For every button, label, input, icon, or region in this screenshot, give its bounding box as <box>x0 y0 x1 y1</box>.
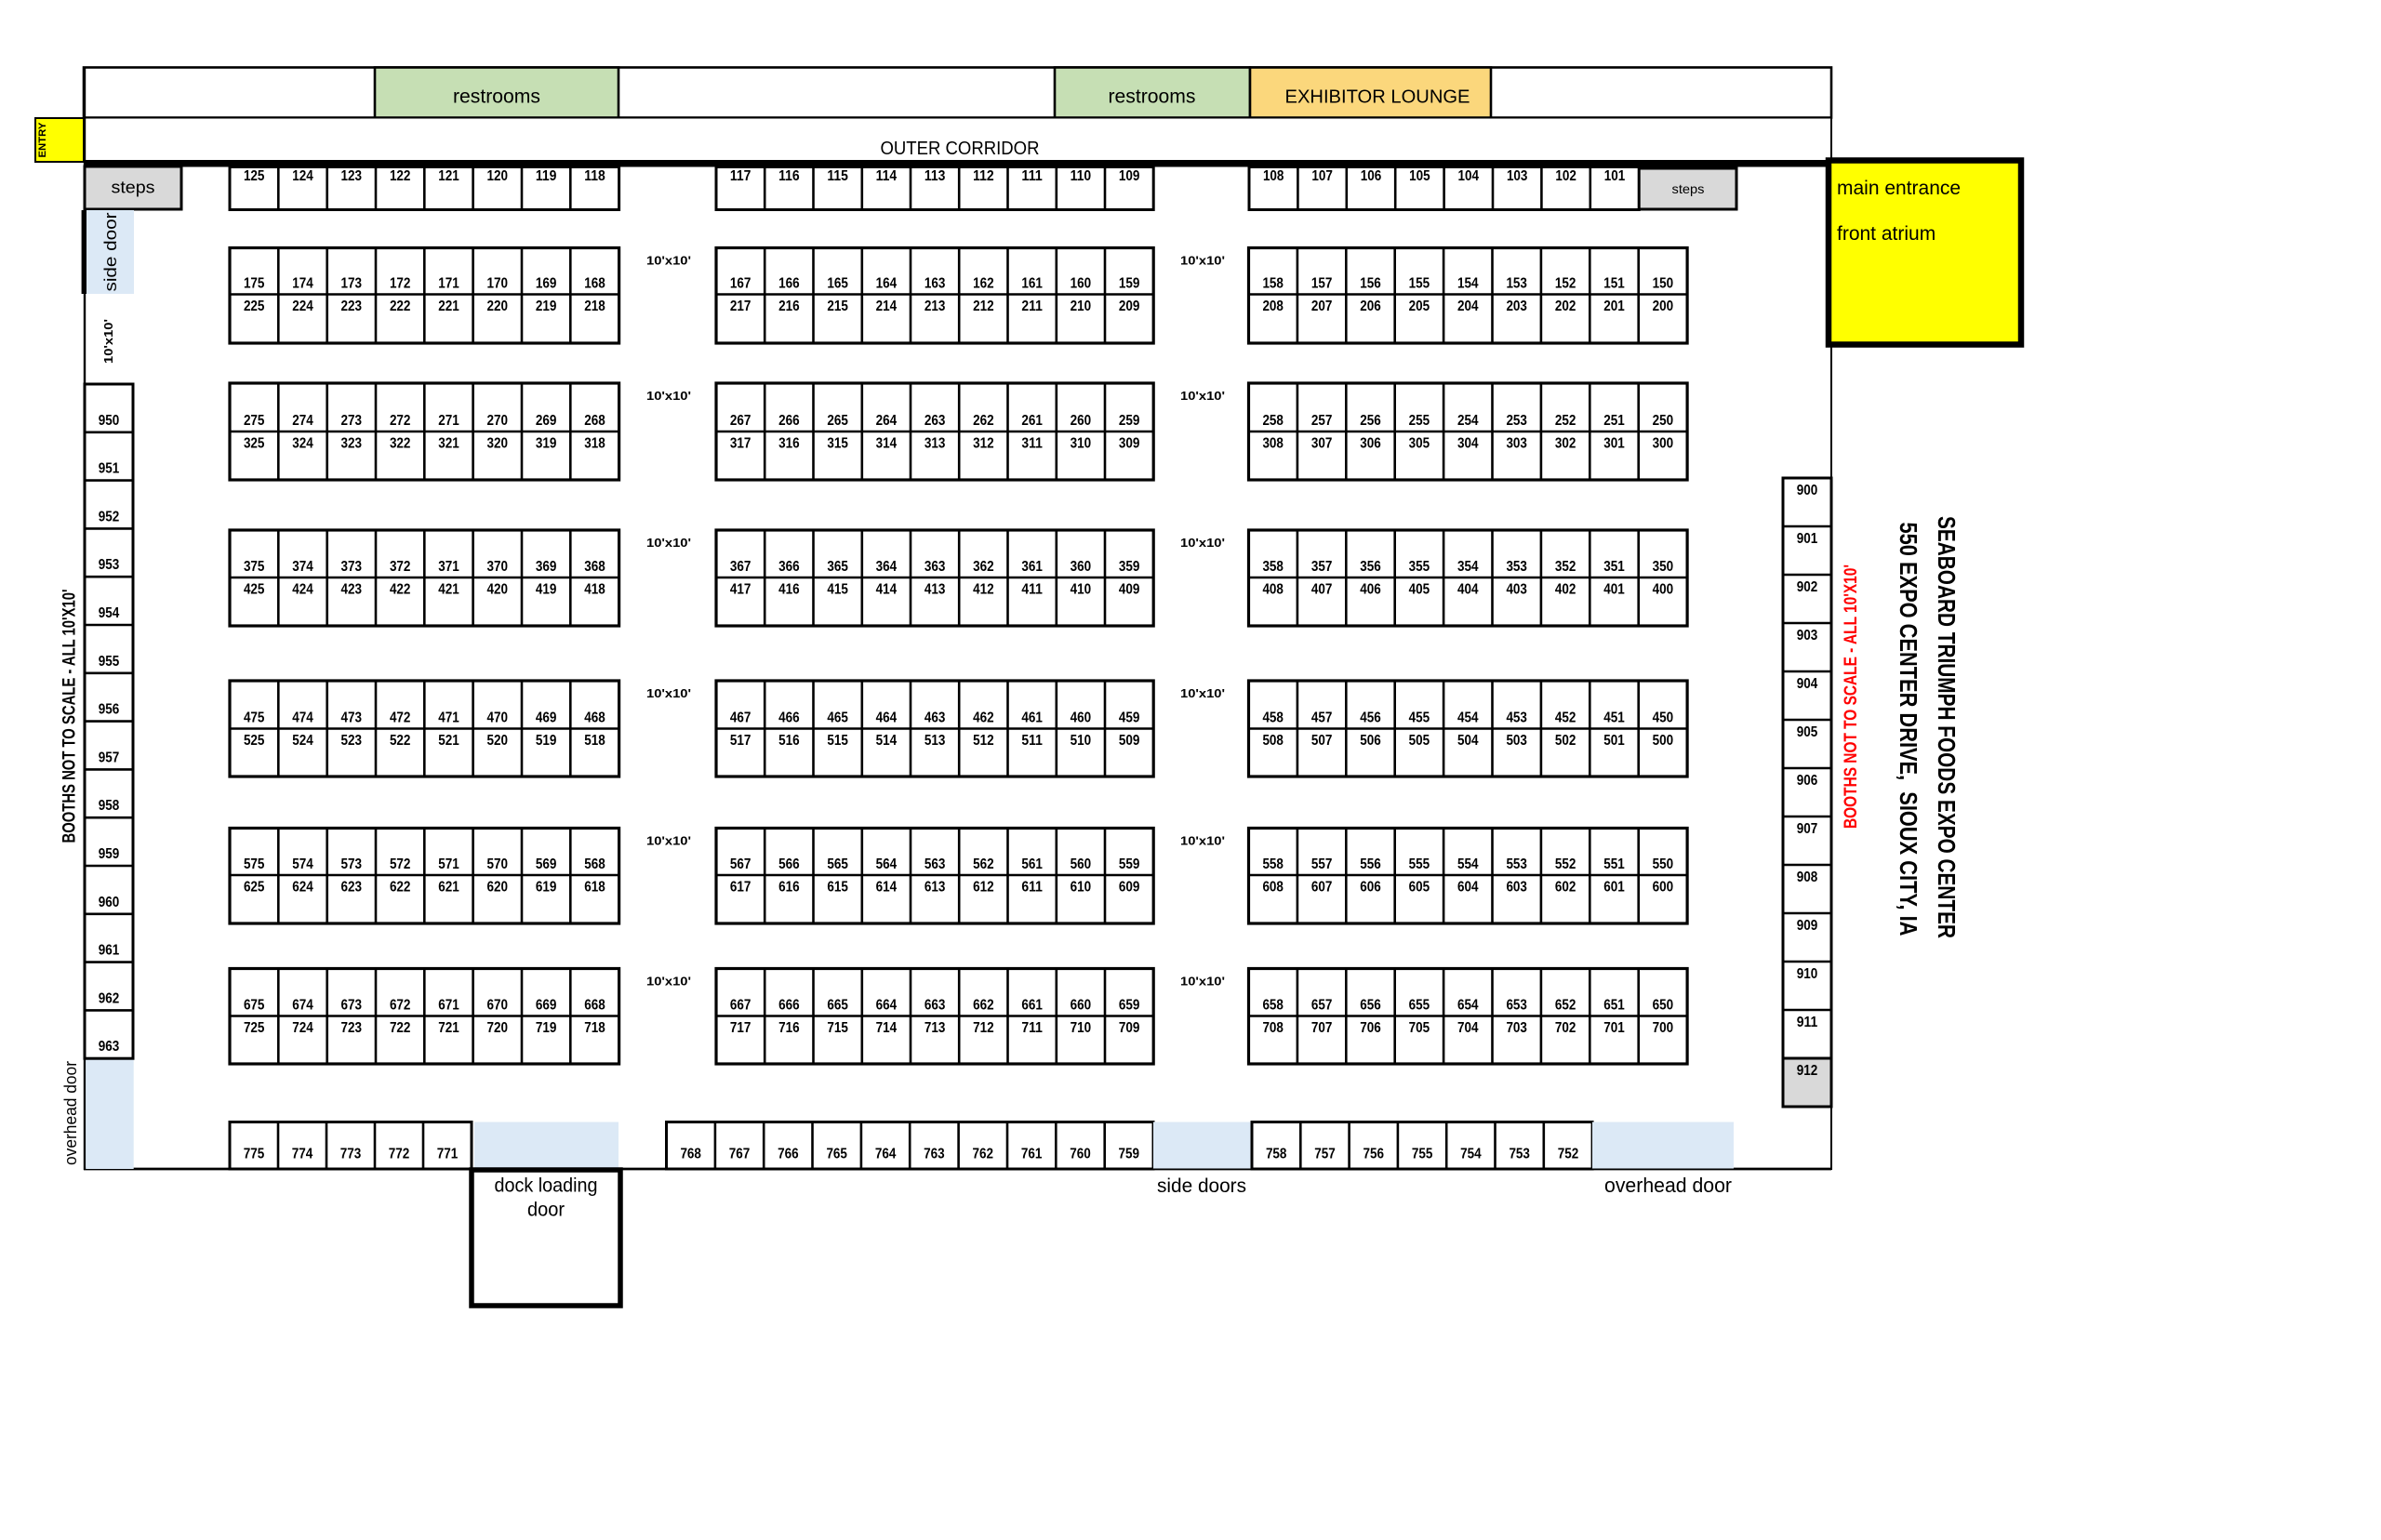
svg-text:519: 519 <box>536 733 557 749</box>
svg-text:306: 306 <box>1360 436 1381 452</box>
svg-text:112: 112 <box>973 168 994 184</box>
svg-text:253: 253 <box>1506 413 1527 429</box>
svg-text:756: 756 <box>1363 1147 1385 1162</box>
svg-text:164: 164 <box>876 276 898 292</box>
svg-text:272: 272 <box>390 413 411 429</box>
svg-text:715: 715 <box>827 1020 848 1036</box>
svg-text:762: 762 <box>973 1147 994 1162</box>
svg-text:322: 322 <box>390 436 411 452</box>
svg-text:473: 473 <box>341 710 363 726</box>
svg-text:421: 421 <box>438 582 459 598</box>
svg-text:265: 265 <box>827 413 848 429</box>
svg-text:419: 419 <box>536 582 557 598</box>
svg-text:363: 363 <box>924 559 946 575</box>
svg-text:304: 304 <box>1457 436 1479 452</box>
svg-text:110: 110 <box>1071 168 1092 184</box>
svg-text:174: 174 <box>292 276 313 292</box>
svg-text:460: 460 <box>1071 710 1092 726</box>
svg-text:516: 516 <box>778 733 800 749</box>
svg-text:466: 466 <box>778 710 800 726</box>
svg-text:656: 656 <box>1360 998 1381 1014</box>
svg-text:558: 558 <box>1262 856 1284 872</box>
svg-text:154: 154 <box>1457 276 1479 292</box>
svg-text:418: 418 <box>584 582 605 598</box>
svg-text:907: 907 <box>1797 821 1818 837</box>
svg-text:153: 153 <box>1506 276 1527 292</box>
svg-text:511: 511 <box>1021 733 1043 749</box>
svg-text:471: 471 <box>438 710 459 726</box>
svg-text:420: 420 <box>487 582 509 598</box>
svg-text:270: 270 <box>487 413 509 429</box>
svg-text:509: 509 <box>1119 733 1140 749</box>
svg-text:510: 510 <box>1071 733 1092 749</box>
svg-text:617: 617 <box>730 880 752 896</box>
svg-text:603: 603 <box>1506 880 1527 896</box>
svg-text:502: 502 <box>1555 733 1576 749</box>
svg-text:10'x10': 10'x10' <box>101 319 115 364</box>
svg-text:269: 269 <box>536 413 557 429</box>
svg-text:461: 461 <box>1021 710 1043 726</box>
svg-text:575: 575 <box>244 856 265 872</box>
svg-text:155: 155 <box>1409 276 1430 292</box>
svg-text:455: 455 <box>1409 710 1430 726</box>
svg-text:707: 707 <box>1311 1020 1333 1036</box>
svg-text:113: 113 <box>924 168 946 184</box>
svg-text:254: 254 <box>1457 413 1479 429</box>
svg-text:207: 207 <box>1311 299 1333 314</box>
svg-text:763: 763 <box>924 1147 945 1162</box>
svg-text:200: 200 <box>1653 299 1674 314</box>
svg-text:553: 553 <box>1506 856 1527 872</box>
svg-text:407: 407 <box>1311 582 1333 598</box>
svg-text:258: 258 <box>1262 413 1284 429</box>
svg-text:215: 215 <box>827 299 848 314</box>
svg-text:375: 375 <box>244 559 265 575</box>
svg-text:425: 425 <box>244 582 265 598</box>
svg-text:204: 204 <box>1457 299 1479 314</box>
svg-text:401: 401 <box>1603 582 1625 598</box>
svg-text:518: 518 <box>584 733 605 749</box>
svg-text:717: 717 <box>730 1020 752 1036</box>
svg-text:765: 765 <box>826 1147 847 1162</box>
svg-text:117: 117 <box>730 168 752 184</box>
svg-text:525: 525 <box>244 733 265 749</box>
svg-text:102: 102 <box>1555 168 1576 184</box>
svg-text:10'x10': 10'x10' <box>646 834 691 848</box>
svg-text:156: 156 <box>1360 276 1381 292</box>
svg-text:314: 314 <box>876 436 898 452</box>
svg-text:252: 252 <box>1555 413 1576 429</box>
svg-text:157: 157 <box>1311 276 1333 292</box>
svg-text:169: 169 <box>536 276 557 292</box>
svg-text:722: 722 <box>390 1020 411 1036</box>
svg-text:168: 168 <box>584 276 605 292</box>
svg-text:754: 754 <box>1460 1147 1482 1162</box>
svg-text:453: 453 <box>1506 710 1527 726</box>
svg-text:267: 267 <box>730 413 752 429</box>
svg-text:557: 557 <box>1311 856 1333 872</box>
svg-text:669: 669 <box>536 998 557 1014</box>
svg-text:220: 220 <box>487 299 509 314</box>
svg-text:604: 604 <box>1457 880 1479 896</box>
svg-text:451: 451 <box>1603 710 1625 726</box>
svg-text:661: 661 <box>1021 998 1043 1014</box>
svg-text:214: 214 <box>876 299 898 314</box>
svg-text:620: 620 <box>487 880 509 896</box>
svg-text:666: 666 <box>778 998 800 1014</box>
svg-text:753: 753 <box>1509 1147 1530 1162</box>
svg-text:409: 409 <box>1119 582 1140 598</box>
svg-text:668: 668 <box>584 998 605 1014</box>
svg-text:764: 764 <box>875 1147 897 1162</box>
svg-text:671: 671 <box>438 998 459 1014</box>
svg-text:658: 658 <box>1262 998 1284 1014</box>
svg-text:767: 767 <box>729 1147 751 1162</box>
svg-text:772: 772 <box>389 1147 410 1162</box>
svg-text:410: 410 <box>1071 582 1092 598</box>
svg-text:463: 463 <box>924 710 946 726</box>
svg-text:109: 109 <box>1119 168 1140 184</box>
svg-text:521: 521 <box>438 733 459 749</box>
svg-text:114: 114 <box>876 168 898 184</box>
svg-text:950: 950 <box>99 413 120 429</box>
svg-text:219: 219 <box>536 299 557 314</box>
svg-text:300: 300 <box>1653 436 1674 452</box>
svg-text:10'x10': 10'x10' <box>646 536 691 550</box>
svg-text:563: 563 <box>924 856 946 872</box>
svg-text:373: 373 <box>341 559 363 575</box>
svg-text:561: 561 <box>1021 856 1043 872</box>
svg-text:201: 201 <box>1603 299 1625 314</box>
svg-text:758: 758 <box>1266 1147 1287 1162</box>
svg-text:508: 508 <box>1262 733 1284 749</box>
svg-text:317: 317 <box>730 436 752 452</box>
svg-text:559: 559 <box>1119 856 1140 872</box>
svg-text:restrooms: restrooms <box>453 86 540 108</box>
svg-text:650: 650 <box>1653 998 1674 1014</box>
svg-text:755: 755 <box>1412 1147 1433 1162</box>
svg-text:725: 725 <box>244 1020 265 1036</box>
svg-text:371: 371 <box>438 559 459 575</box>
svg-text:408: 408 <box>1262 582 1284 598</box>
svg-text:910: 910 <box>1797 966 1818 982</box>
svg-text:659: 659 <box>1119 998 1140 1014</box>
svg-text:162: 162 <box>973 276 994 292</box>
svg-text:309: 309 <box>1119 436 1140 452</box>
svg-text:450: 450 <box>1653 710 1674 726</box>
svg-text:356: 356 <box>1360 559 1381 575</box>
svg-text:565: 565 <box>827 856 848 872</box>
svg-text:221: 221 <box>438 299 459 314</box>
svg-text:616: 616 <box>778 880 800 896</box>
svg-text:555: 555 <box>1409 856 1430 872</box>
svg-text:319: 319 <box>536 436 557 452</box>
svg-text:362: 362 <box>973 559 994 575</box>
svg-text:323: 323 <box>341 436 363 452</box>
svg-text:367: 367 <box>730 559 752 575</box>
svg-text:264: 264 <box>876 413 898 429</box>
svg-text:163: 163 <box>924 276 946 292</box>
svg-text:212: 212 <box>973 299 994 314</box>
svg-text:771: 771 <box>437 1147 459 1162</box>
svg-text:523: 523 <box>341 733 363 749</box>
svg-text:366: 366 <box>778 559 800 575</box>
svg-text:614: 614 <box>876 880 898 896</box>
svg-text:958: 958 <box>99 798 120 814</box>
svg-text:259: 259 <box>1119 413 1140 429</box>
svg-text:360: 360 <box>1071 559 1092 575</box>
svg-text:173: 173 <box>341 276 363 292</box>
svg-text:208: 208 <box>1262 299 1284 314</box>
svg-text:405: 405 <box>1409 582 1430 598</box>
svg-text:564: 564 <box>876 856 898 872</box>
svg-text:905: 905 <box>1797 724 1818 740</box>
svg-text:301: 301 <box>1603 436 1625 452</box>
svg-text:411: 411 <box>1021 582 1043 598</box>
svg-text:704: 704 <box>1457 1020 1479 1036</box>
svg-text:door: door <box>527 1200 565 1221</box>
svg-text:SEABOARD TRIUMPH FOODS EXPO CE: SEABOARD TRIUMPH FOODS EXPO CENTER <box>1933 516 1959 938</box>
svg-text:224: 224 <box>292 299 313 314</box>
svg-text:711: 711 <box>1021 1020 1043 1036</box>
svg-text:412: 412 <box>973 582 994 598</box>
svg-text:700: 700 <box>1653 1020 1674 1036</box>
svg-text:714: 714 <box>876 1020 898 1036</box>
svg-text:101: 101 <box>1604 168 1626 184</box>
svg-text:959: 959 <box>99 846 120 862</box>
svg-text:152: 152 <box>1555 276 1576 292</box>
svg-text:414: 414 <box>876 582 898 598</box>
svg-text:768: 768 <box>680 1147 701 1162</box>
svg-text:903: 903 <box>1797 628 1818 644</box>
svg-text:961: 961 <box>99 943 120 959</box>
svg-text:225: 225 <box>244 299 265 314</box>
svg-text:956: 956 <box>99 702 120 718</box>
svg-text:223: 223 <box>341 299 363 314</box>
svg-text:469: 469 <box>536 710 557 726</box>
svg-text:701: 701 <box>1603 1020 1625 1036</box>
svg-text:BOOTHS NOT TO SCALE - ALL 10'X: BOOTHS NOT TO SCALE - ALL 10'X10' <box>60 590 80 843</box>
svg-text:268: 268 <box>584 413 605 429</box>
svg-text:464: 464 <box>876 710 898 726</box>
svg-text:206: 206 <box>1360 299 1381 314</box>
svg-text:150: 150 <box>1653 276 1674 292</box>
svg-text:312: 312 <box>973 436 994 452</box>
svg-text:652: 652 <box>1555 998 1576 1014</box>
svg-text:209: 209 <box>1119 299 1140 314</box>
svg-text:111: 111 <box>1021 168 1043 184</box>
svg-text:361: 361 <box>1021 559 1043 575</box>
svg-text:562: 562 <box>973 856 994 872</box>
svg-text:125: 125 <box>244 168 265 184</box>
svg-text:501: 501 <box>1603 733 1625 749</box>
svg-text:302: 302 <box>1555 436 1576 452</box>
svg-text:159: 159 <box>1119 276 1140 292</box>
svg-text:205: 205 <box>1409 299 1430 314</box>
svg-text:619: 619 <box>536 880 557 896</box>
svg-text:660: 660 <box>1071 998 1092 1014</box>
svg-text:724: 724 <box>292 1020 313 1036</box>
svg-text:171: 171 <box>438 276 459 292</box>
svg-text:662: 662 <box>973 998 994 1014</box>
svg-text:574: 574 <box>292 856 313 872</box>
svg-text:400: 400 <box>1653 582 1674 598</box>
svg-text:716: 716 <box>778 1020 800 1036</box>
svg-text:EXHIBITOR LOUNGE: EXHIBITOR LOUNGE <box>1285 87 1470 108</box>
svg-text:902: 902 <box>1797 579 1818 595</box>
svg-text:571: 571 <box>438 856 459 872</box>
svg-text:311: 311 <box>1021 436 1043 452</box>
svg-text:573: 573 <box>341 856 363 872</box>
svg-text:415: 415 <box>827 582 848 598</box>
svg-text:474: 474 <box>292 710 313 726</box>
svg-text:325: 325 <box>244 436 265 452</box>
svg-text:622: 622 <box>390 880 411 896</box>
svg-text:953: 953 <box>99 557 120 573</box>
svg-text:370: 370 <box>487 559 509 575</box>
svg-text:250: 250 <box>1653 413 1674 429</box>
svg-text:266: 266 <box>778 413 800 429</box>
svg-text:353: 353 <box>1506 559 1527 575</box>
svg-text:316: 316 <box>778 436 800 452</box>
svg-text:703: 703 <box>1506 1020 1527 1036</box>
svg-text:713: 713 <box>924 1020 946 1036</box>
svg-text:705: 705 <box>1409 1020 1430 1036</box>
svg-text:170: 170 <box>487 276 509 292</box>
svg-text:761: 761 <box>1021 1147 1043 1162</box>
svg-text:610: 610 <box>1071 880 1092 896</box>
svg-text:623: 623 <box>341 880 363 896</box>
svg-text:904: 904 <box>1797 676 1818 692</box>
svg-text:175: 175 <box>244 276 265 292</box>
svg-text:720: 720 <box>487 1020 509 1036</box>
svg-text:524: 524 <box>292 733 313 749</box>
svg-text:260: 260 <box>1071 413 1092 429</box>
svg-text:417: 417 <box>730 582 752 598</box>
svg-text:273: 273 <box>341 413 363 429</box>
svg-text:721: 721 <box>438 1020 459 1036</box>
svg-text:307: 307 <box>1311 436 1333 452</box>
svg-text:624: 624 <box>292 880 313 896</box>
svg-text:900: 900 <box>1797 483 1818 498</box>
svg-text:359: 359 <box>1119 559 1140 575</box>
svg-text:124: 124 <box>292 168 313 184</box>
svg-text:664: 664 <box>876 998 898 1014</box>
svg-text:158: 158 <box>1262 276 1284 292</box>
svg-text:505: 505 <box>1409 733 1430 749</box>
svg-text:702: 702 <box>1555 1020 1576 1036</box>
svg-text:151: 151 <box>1603 276 1625 292</box>
svg-text:609: 609 <box>1119 880 1140 896</box>
svg-text:566: 566 <box>778 856 800 872</box>
svg-text:374: 374 <box>292 559 313 575</box>
svg-text:512: 512 <box>973 733 994 749</box>
svg-text:211: 211 <box>1021 299 1043 314</box>
svg-text:106: 106 <box>1361 168 1382 184</box>
svg-text:main entrance: main entrance <box>1837 178 1961 199</box>
svg-text:side doors: side doors <box>1157 1175 1246 1197</box>
svg-text:120: 120 <box>487 168 509 184</box>
svg-text:773: 773 <box>340 1147 362 1162</box>
svg-text:651: 651 <box>1603 998 1625 1014</box>
svg-text:10'x10': 10'x10' <box>646 975 691 989</box>
svg-text:670: 670 <box>487 998 509 1014</box>
svg-text:side door: side door <box>101 213 120 292</box>
svg-text:962: 962 <box>99 990 120 1006</box>
svg-text:406: 406 <box>1360 582 1381 598</box>
svg-text:172: 172 <box>390 276 411 292</box>
svg-text:10'x10': 10'x10' <box>1180 254 1225 268</box>
svg-text:520: 520 <box>487 733 509 749</box>
svg-text:909: 909 <box>1797 918 1818 934</box>
svg-text:257: 257 <box>1311 413 1333 429</box>
svg-text:358: 358 <box>1262 559 1284 575</box>
svg-text:262: 262 <box>973 413 994 429</box>
svg-text:310: 310 <box>1071 436 1092 452</box>
svg-text:655: 655 <box>1409 998 1430 1014</box>
svg-text:372: 372 <box>390 559 411 575</box>
svg-text:116: 116 <box>778 168 800 184</box>
svg-text:667: 667 <box>730 998 752 1014</box>
svg-text:275: 275 <box>244 413 265 429</box>
svg-text:122: 122 <box>390 168 411 184</box>
svg-text:515: 515 <box>827 733 848 749</box>
svg-text:108: 108 <box>1263 168 1284 184</box>
svg-text:355: 355 <box>1409 559 1430 575</box>
svg-text:654: 654 <box>1457 998 1479 1014</box>
svg-text:123: 123 <box>341 168 363 184</box>
svg-text:350: 350 <box>1653 559 1674 575</box>
svg-text:216: 216 <box>778 299 800 314</box>
svg-text:BOOTHS NOT TO SCALE - ALL 10'X: BOOTHS NOT TO SCALE - ALL 10'X10' <box>1841 564 1861 829</box>
svg-text:166: 166 <box>778 276 800 292</box>
svg-text:475: 475 <box>244 710 265 726</box>
svg-text:708: 708 <box>1262 1020 1284 1036</box>
svg-text:912: 912 <box>1797 1063 1818 1079</box>
svg-text:951: 951 <box>99 461 120 477</box>
svg-text:507: 507 <box>1311 733 1333 749</box>
svg-text:165: 165 <box>827 276 848 292</box>
svg-text:673: 673 <box>341 998 363 1014</box>
svg-text:467: 467 <box>730 710 752 726</box>
svg-text:560: 560 <box>1071 856 1092 872</box>
svg-text:107: 107 <box>1311 168 1333 184</box>
svg-text:653: 653 <box>1506 998 1527 1014</box>
svg-text:752: 752 <box>1558 1147 1579 1162</box>
svg-text:10'x10': 10'x10' <box>1180 536 1225 550</box>
svg-text:674: 674 <box>292 998 313 1014</box>
svg-text:OUTER CORRIDOR: OUTER CORRIDOR <box>881 139 1040 159</box>
svg-text:104: 104 <box>1458 168 1480 184</box>
svg-text:506: 506 <box>1360 733 1381 749</box>
svg-text:103: 103 <box>1507 168 1528 184</box>
svg-text:459: 459 <box>1119 710 1140 726</box>
svg-text:465: 465 <box>827 710 848 726</box>
svg-text:607: 607 <box>1311 880 1333 896</box>
svg-text:759: 759 <box>1119 1147 1140 1162</box>
svg-text:472: 472 <box>390 710 411 726</box>
svg-text:255: 255 <box>1409 413 1430 429</box>
svg-text:908: 908 <box>1797 870 1818 885</box>
svg-text:10'x10': 10'x10' <box>1180 389 1225 403</box>
svg-text:203: 203 <box>1506 299 1527 314</box>
svg-text:167: 167 <box>730 276 752 292</box>
svg-text:462: 462 <box>973 710 994 726</box>
svg-text:605: 605 <box>1409 880 1430 896</box>
svg-text:263: 263 <box>924 413 946 429</box>
svg-text:675: 675 <box>244 998 265 1014</box>
svg-text:522: 522 <box>390 733 411 749</box>
